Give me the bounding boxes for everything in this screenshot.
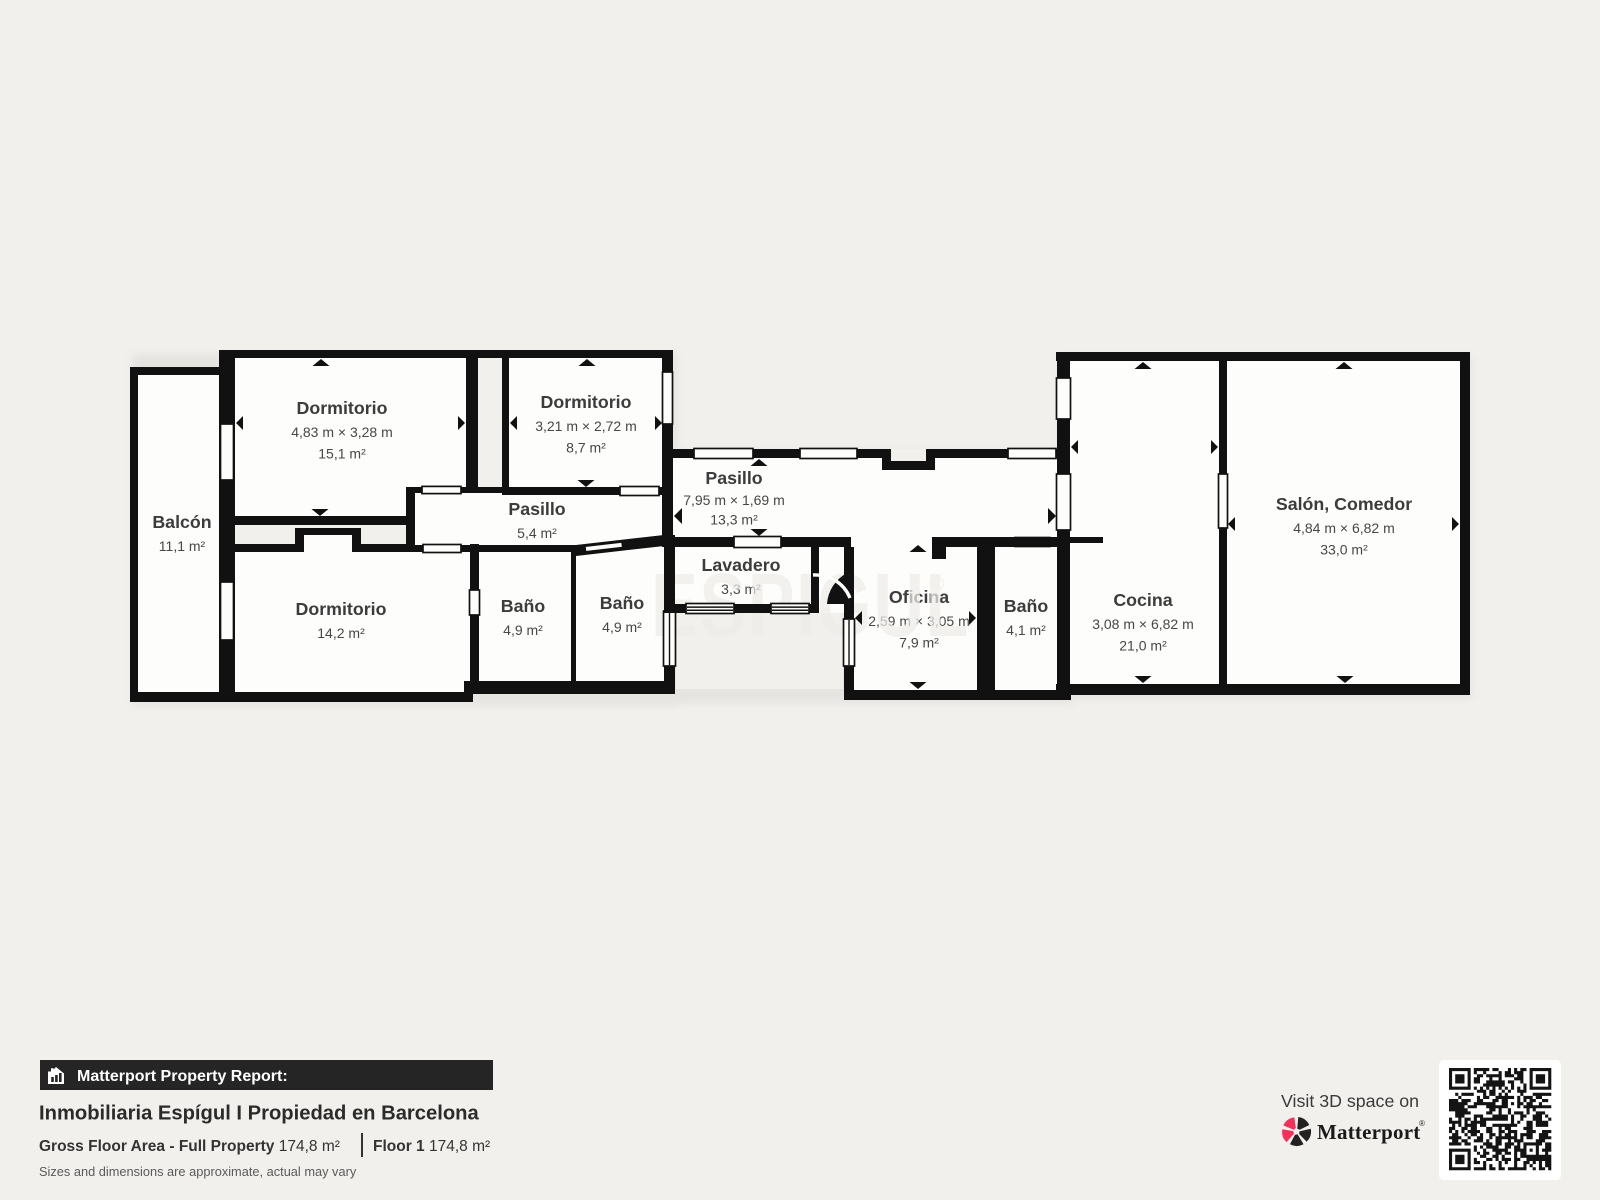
- svg-text:Gross Floor Area - Full Proper: Gross Floor Area - Full Property 174,8 m…: [39, 1138, 340, 1155]
- svg-text:Baño: Baño: [1004, 596, 1049, 616]
- svg-text:Visit 3D space on: Visit 3D space on: [1281, 1091, 1419, 1111]
- svg-text:Matterport Property Report:: Matterport Property Report:: [77, 1068, 288, 1085]
- svg-text:Salón, Comedor: Salón, Comedor: [1276, 494, 1412, 514]
- svg-text:Matterport: Matterport: [1317, 1120, 1420, 1144]
- svg-text:Baño: Baño: [501, 596, 546, 616]
- svg-text:Inmobiliaria Espígul I Propied: Inmobiliaria Espígul I Propiedad en Barc…: [39, 1103, 480, 1125]
- svg-text:Dormitorio: Dormitorio: [296, 599, 387, 619]
- svg-text:3,21 m × 2,72 m: 3,21 m × 2,72 m: [535, 418, 637, 434]
- svg-text:4,83 m × 3,28 m: 4,83 m × 3,28 m: [291, 424, 393, 440]
- svg-text:8,7 m²: 8,7 m²: [566, 440, 606, 456]
- svg-text:13,3 m²: 13,3 m²: [710, 512, 758, 528]
- svg-text:Pasillo: Pasillo: [508, 499, 565, 519]
- svg-text:21,0 m²: 21,0 m²: [1119, 638, 1167, 654]
- svg-text:7,95 m × 1,69 m: 7,95 m × 1,69 m: [683, 492, 785, 508]
- svg-text:3,08 m × 6,82 m: 3,08 m × 6,82 m: [1092, 616, 1194, 632]
- svg-text:5,4 m²: 5,4 m²: [517, 525, 557, 541]
- svg-text:Dormitorio: Dormitorio: [541, 392, 632, 412]
- svg-text:Pasillo: Pasillo: [705, 468, 762, 488]
- svg-text:14,2 m²: 14,2 m²: [317, 625, 365, 641]
- svg-text:®: ®: [929, 573, 945, 596]
- svg-text:4,9 m²: 4,9 m²: [602, 619, 642, 635]
- svg-text:4,1 m²: 4,1 m²: [1006, 622, 1046, 638]
- svg-text:Balcón: Balcón: [152, 512, 211, 532]
- svg-text:Baño: Baño: [600, 593, 645, 613]
- svg-text:4,9 m²: 4,9 m²: [503, 622, 543, 638]
- svg-text:15,1 m²: 15,1 m²: [318, 446, 366, 462]
- svg-text:Dormitorio: Dormitorio: [297, 398, 388, 418]
- svg-text:4,84 m × 6,82 m: 4,84 m × 6,82 m: [1293, 520, 1395, 536]
- svg-text:11,1 m²: 11,1 m²: [159, 538, 206, 554]
- svg-text:33,0 m²: 33,0 m²: [1320, 542, 1368, 558]
- svg-text:Sizes and dimensions are appro: Sizes and dimensions are approximate, ac…: [39, 1164, 357, 1179]
- svg-text:Cocina: Cocina: [1113, 590, 1172, 610]
- svg-text:Floor 1 174,8 m²: Floor 1 174,8 m²: [373, 1138, 490, 1155]
- svg-text:®: ®: [1419, 1119, 1425, 1128]
